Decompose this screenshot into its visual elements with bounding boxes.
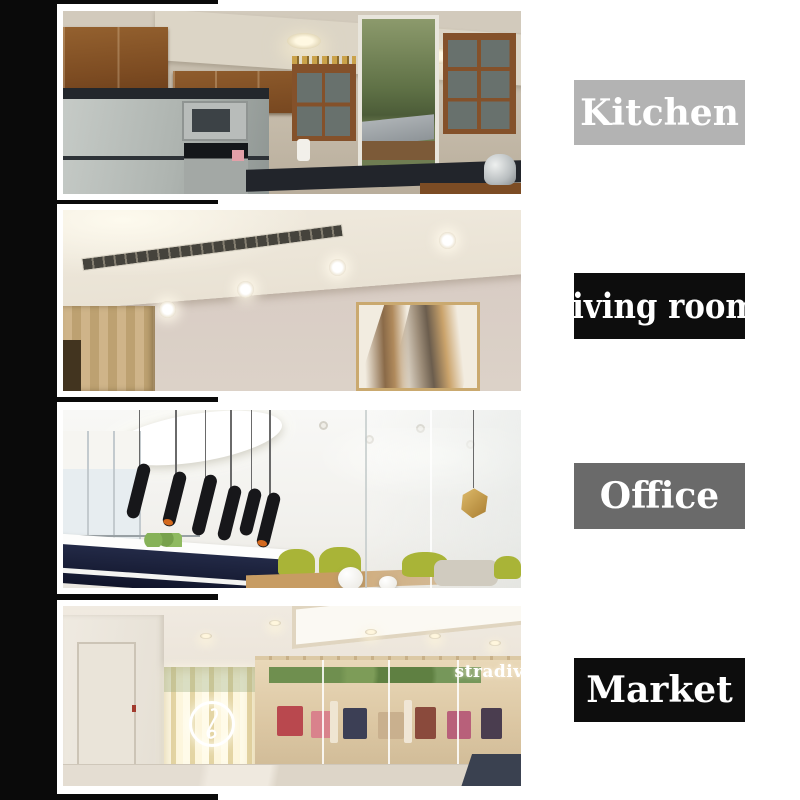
- downlight: [489, 640, 501, 646]
- bottom-accent-bar: [0, 794, 218, 800]
- market-photo-card: stradiv: [57, 601, 527, 792]
- living-room-photo: [63, 210, 521, 391]
- microwave: [182, 101, 248, 141]
- wall-art: [356, 302, 480, 391]
- clothing-rack: [378, 712, 405, 740]
- glass-mullion: [388, 660, 390, 775]
- wall-note: [232, 150, 243, 161]
- label-living-room: living room: [574, 273, 745, 339]
- label-kitchen: Kitchen: [574, 80, 745, 145]
- sofa: [434, 560, 498, 587]
- ceiling-light-slot: [292, 606, 521, 649]
- downlight: [237, 281, 254, 298]
- led-wall-tint: [164, 667, 256, 692]
- paper-towel: [297, 139, 311, 161]
- kitchen-photo-card: [57, 6, 527, 200]
- product-collage: stradiv Kitchen living room Office Marke…: [0, 0, 800, 800]
- mannequin: [404, 700, 412, 743]
- treble-clef-icon: [189, 701, 235, 747]
- office-photo: [63, 410, 521, 588]
- label-market: Market: [574, 658, 745, 722]
- service-door: [77, 642, 137, 775]
- glass-cabinet: [443, 33, 516, 134]
- kitchen-photo: [63, 11, 521, 194]
- label-kitchen-text: Kitchen: [580, 92, 739, 134]
- storefront-sign: stradiv: [455, 662, 521, 682]
- green-chair: [494, 556, 521, 579]
- hanging-plants: [269, 667, 482, 683]
- kitchen-window: [358, 15, 438, 178]
- living-room-photo-card: [57, 205, 527, 397]
- office-window: [63, 431, 141, 548]
- downlight: [159, 301, 176, 318]
- label-living-room-text: living room: [561, 286, 759, 327]
- sphere-lamp: [379, 576, 397, 588]
- top-accent-bar: [0, 0, 218, 4]
- pendant-tip: [163, 518, 174, 526]
- green-chair: [278, 549, 315, 576]
- downlight: [269, 620, 281, 626]
- clothing-rack: [343, 708, 367, 739]
- door-sign: [132, 705, 136, 712]
- pendant-light: [191, 473, 219, 536]
- downlight: [439, 232, 456, 249]
- pendant-tip: [257, 539, 268, 547]
- label-office: Office: [574, 463, 745, 529]
- clothing-rack: [481, 708, 502, 739]
- pendant-light: [162, 470, 188, 527]
- market-photo: stradiv: [63, 606, 521, 786]
- sphere-lamp: [338, 567, 363, 588]
- refrigerator-top: [63, 88, 269, 99]
- glass-mullion: [322, 660, 324, 775]
- mannequin: [330, 701, 338, 742]
- desk-plant: [141, 533, 182, 547]
- office-photo-card: [57, 405, 527, 594]
- glass-cabinet: [292, 64, 356, 141]
- clothing-rack: [415, 707, 436, 739]
- divider-bar-3: [0, 594, 218, 600]
- mall-floor: [63, 764, 521, 786]
- pendant-light: [217, 484, 243, 541]
- downlight: [429, 633, 441, 639]
- downlight: [200, 633, 212, 639]
- kettle: [484, 154, 516, 185]
- downlight: [329, 259, 346, 276]
- label-office-text: Office: [600, 475, 719, 517]
- pendant-cord: [473, 410, 475, 488]
- clothing-rack: [277, 706, 304, 736]
- label-market-text: Market: [586, 669, 733, 711]
- doorway: [63, 340, 81, 391]
